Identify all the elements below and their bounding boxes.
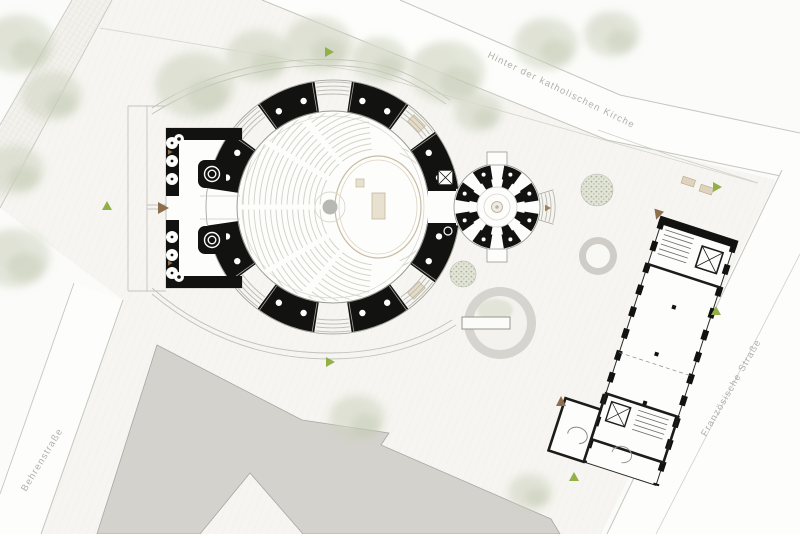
sanctuary-oval [335,156,421,258]
spiral-stair-north [198,160,226,188]
site-plan-canvas: Hinter der katholischen Kirche Französis… [0,0,800,534]
planter-tree-small-west [450,261,476,287]
ambo [356,179,364,187]
altar [372,193,385,219]
baptismal-font-dot [323,200,338,215]
spiral-stair-connector [441,224,455,238]
planter-ring [579,237,617,275]
garden-bench [462,317,510,329]
site-plan-drawing: Hinter der katholischen Kirche Französis… [0,0,800,534]
planter-tree-small-north [581,174,613,206]
spiral-stair-south [198,226,226,254]
